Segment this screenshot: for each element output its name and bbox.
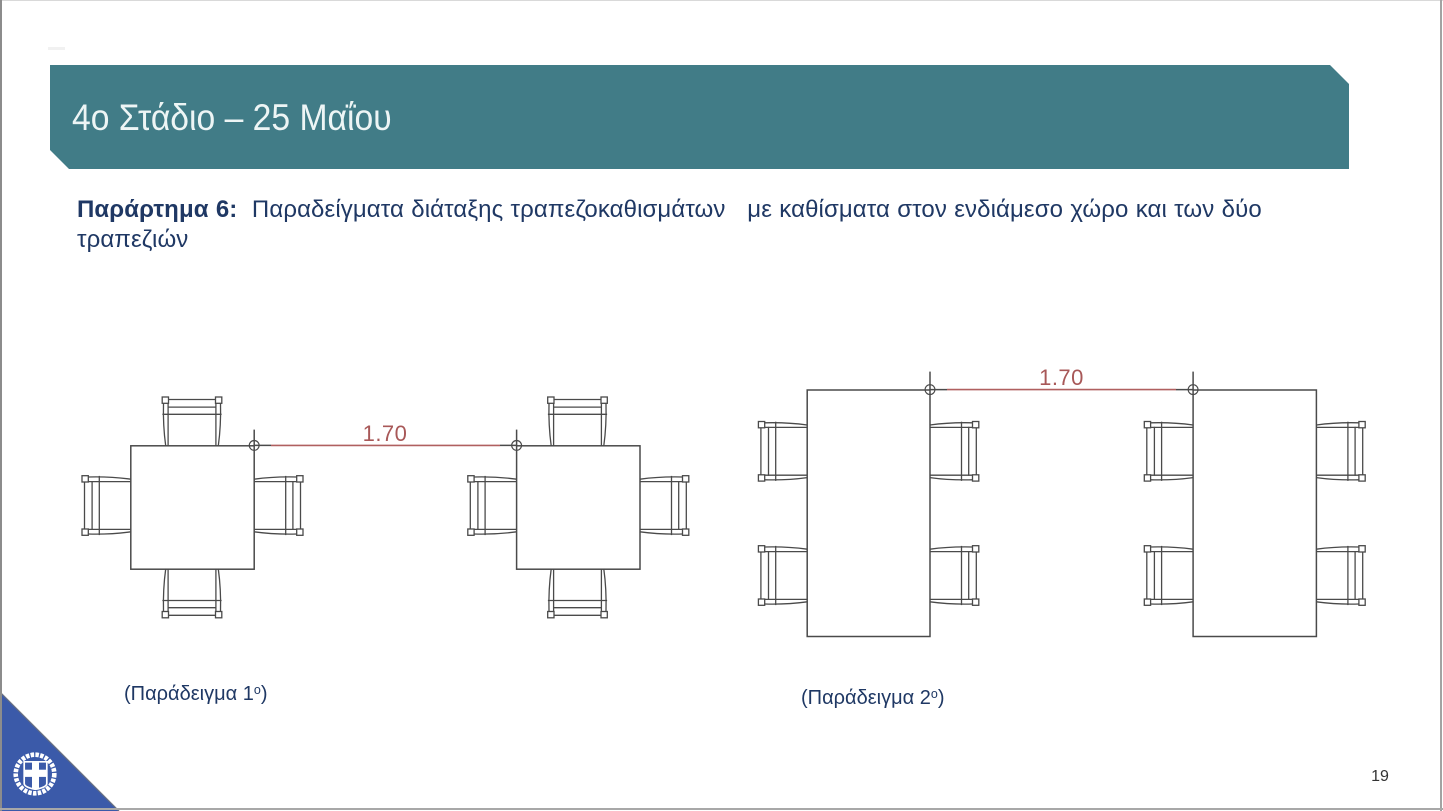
svg-text:1.70: 1.70 bbox=[1039, 365, 1084, 390]
svg-text:1.70: 1.70 bbox=[363, 421, 408, 446]
